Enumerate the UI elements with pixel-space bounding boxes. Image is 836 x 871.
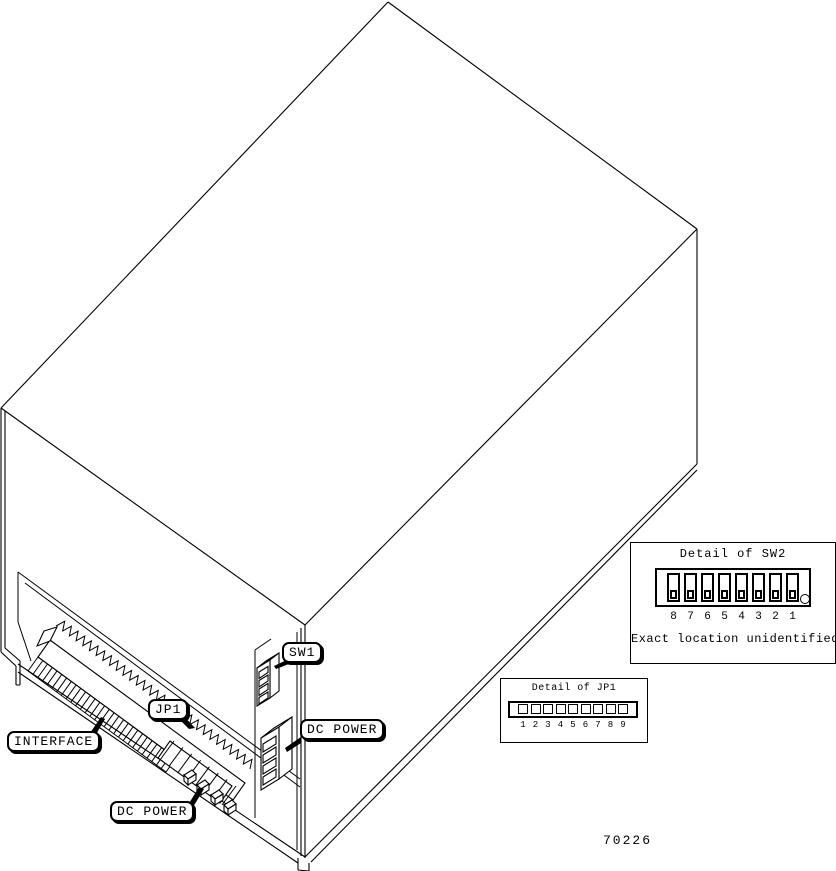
dip-switch-knob (721, 590, 728, 599)
sw2-switch-number: 7 (684, 611, 697, 623)
dip-switch-knob (704, 590, 711, 599)
dip-switch (684, 573, 697, 602)
jumper-pin (543, 704, 553, 714)
dc-power-connector-right (261, 717, 292, 790)
sw2-switch-number: 4 (735, 611, 748, 623)
jumper-pin (531, 704, 541, 714)
jp1-pin-number: 3 (543, 720, 553, 730)
sw2-switch-number: 1 (786, 611, 799, 623)
dip-switch (786, 573, 799, 602)
jp1-pin-row (508, 701, 638, 718)
dip-switch-knob (687, 590, 694, 599)
dip-switch (752, 573, 765, 602)
sw2-index-circle (800, 594, 810, 604)
dip-switch (769, 573, 782, 602)
dip-switch (735, 573, 748, 602)
interface-callout-label: INTERFACE (7, 731, 100, 752)
jumper-pin (618, 704, 628, 714)
jumper-pin (556, 704, 566, 714)
sw2-dip-bank (655, 568, 811, 607)
jumper-pin (606, 704, 616, 714)
sw1-callout-label: SW1 (282, 642, 322, 663)
sw2-caption: Exact location unidentified (631, 632, 835, 646)
jumper-pin (568, 704, 578, 714)
jp1-pin-number: 9 (618, 720, 628, 730)
detail-of-jp1-title: Detail of JP1 (501, 683, 647, 694)
dip-switch-knob (670, 590, 677, 599)
jp1-callout-label: JP1 (148, 699, 188, 720)
dip-switch-knob (789, 590, 796, 599)
sw2-switch-number: 6 (701, 611, 714, 623)
jp1-pin-number: 7 (593, 720, 603, 730)
sw2-switch-numbers: 8 7 6 5 4 3 2 1 (655, 611, 811, 623)
dip-switch (718, 573, 731, 602)
dip-switch-knob (772, 590, 779, 599)
detail-of-sw2-title: Detail of SW2 (631, 547, 835, 561)
jumper-pin (518, 704, 528, 714)
jp1-pin-number: 8 (606, 720, 616, 730)
jp1-pin-number: 4 (556, 720, 566, 730)
sw2-switch-number: 5 (718, 611, 731, 623)
dc-power-right-callout-label: DC POWER (300, 719, 384, 740)
sw2-switch-number: 3 (752, 611, 765, 623)
jp1-pin-number: 1 (518, 720, 528, 730)
dip-switch-knob (738, 590, 745, 599)
dip-switch-knob (755, 590, 762, 599)
figure-number: 70226 (603, 833, 652, 848)
jumper-pin (581, 704, 591, 714)
dc-power-pin (224, 800, 236, 815)
detail-of-sw2-box: Detail of SW2 8 7 6 5 4 3 2 1 Exact loca… (630, 542, 836, 664)
dip-switch (701, 573, 714, 602)
jp1-pin-number: 6 (581, 720, 591, 730)
chassis-drawing (0, 0, 836, 871)
jumper-pin (593, 704, 603, 714)
jp1-pin-numbers: 1 2 3 4 5 6 7 8 9 (508, 720, 638, 730)
sw2-switch-number: 8 (667, 611, 680, 623)
jp1-pin-number: 5 (568, 720, 578, 730)
dc-power-bottom-callout-label: DC POWER (110, 801, 194, 822)
dip-switch (667, 573, 680, 602)
figure-canvas: INTERFACE JP1 SW1 DC POWER DC POWER Deta… (0, 0, 836, 871)
jp1-pin-number: 2 (531, 720, 541, 730)
detail-of-jp1-box: Detail of JP1 1 2 3 4 5 6 7 8 9 (500, 678, 648, 743)
sw2-switch-number: 2 (769, 611, 782, 623)
sw1-dip-switch (257, 653, 279, 706)
